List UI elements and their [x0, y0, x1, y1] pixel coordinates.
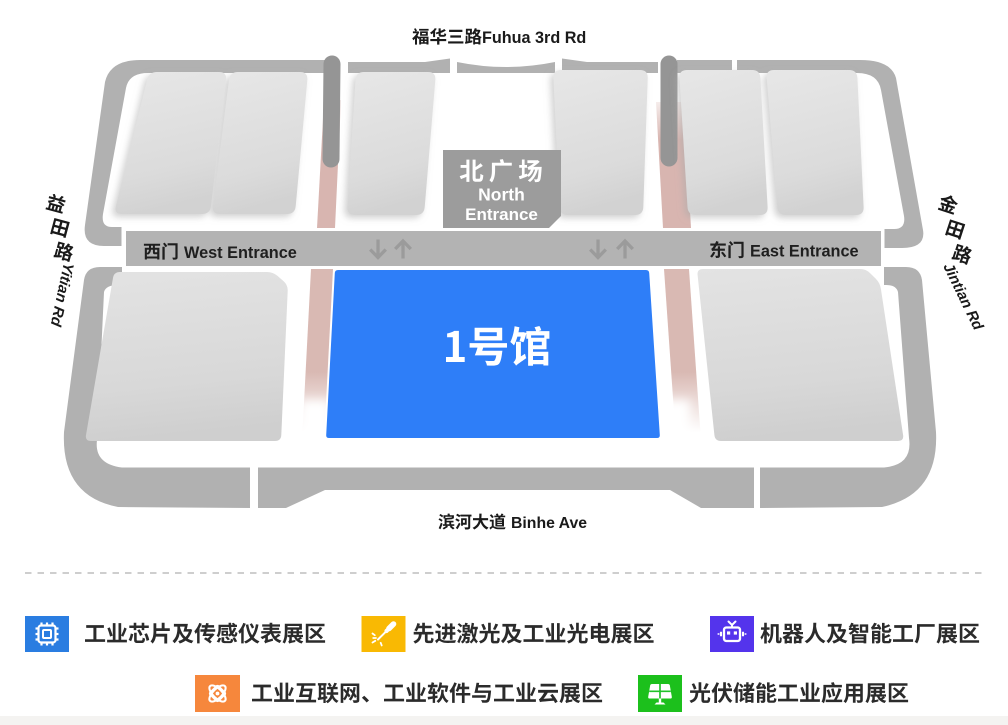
svg-text:Yitian Rd: Yitian Rd — [47, 261, 77, 328]
svg-text:Binhe Ave: Binhe Ave — [511, 515, 587, 532]
svg-text:North: North — [478, 185, 525, 205]
svg-text:West Entrance: West Entrance — [184, 244, 297, 262]
svg-text:Entrance: Entrance — [465, 205, 538, 224]
svg-text:Fuhua 3rd Rd: Fuhua 3rd Rd — [482, 29, 586, 47]
svg-text:Jintian Rd: Jintian Rd — [939, 260, 986, 333]
svg-text:East Entrance: East Entrance — [750, 243, 859, 261]
